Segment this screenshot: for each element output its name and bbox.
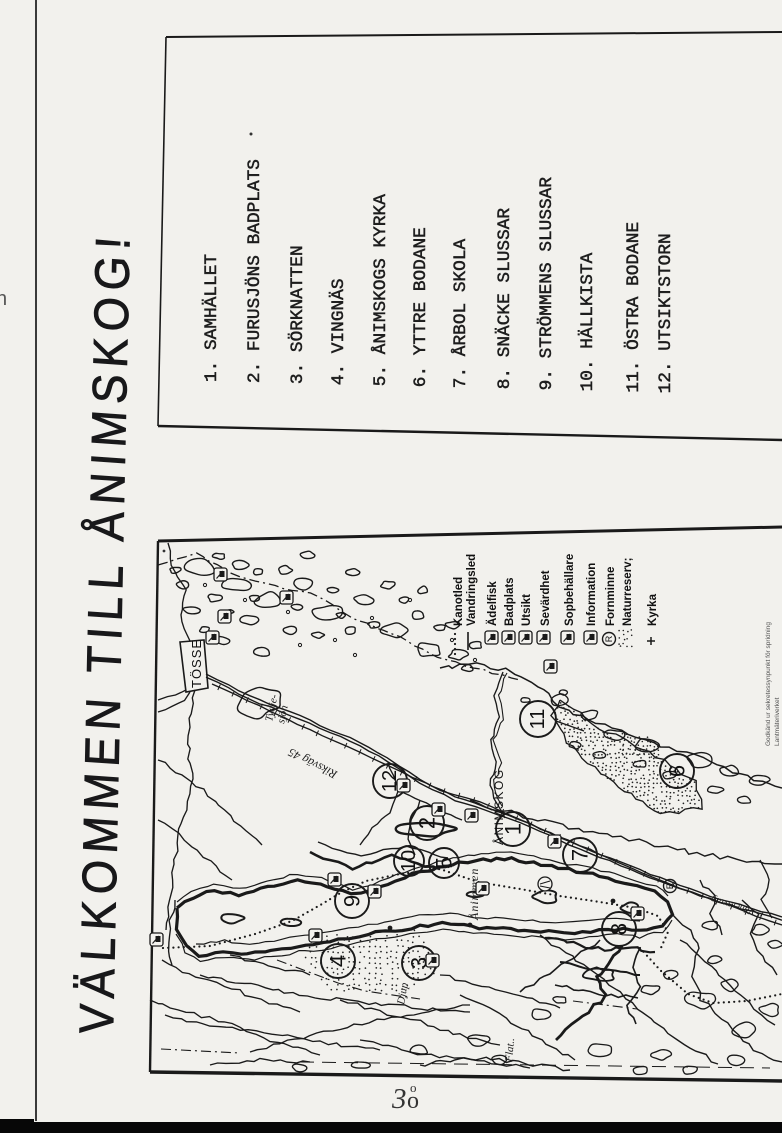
svg-text:3: 3 bbox=[391, 1083, 407, 1115]
svg-text:ÅNIMSKOG: ÅNIMSKOG bbox=[491, 768, 506, 845]
svg-text:11. ÖSTRA BODANE: 11. ÖSTRA BODANE bbox=[623, 222, 644, 393]
svg-text:5. ÅNIMSKOGS KYRKA: 5. ÅNIMSKOGS KYRKA bbox=[370, 194, 391, 386]
svg-text:Riksväg 45: Riksväg 45 bbox=[286, 745, 340, 782]
svg-text:7: 7 bbox=[568, 849, 593, 861]
svg-text:7. ÅRBOL SKOLA: 7. ÅRBOL SKOLA bbox=[450, 238, 471, 388]
svg-text:Sopbehällare: Sopbehällare bbox=[564, 554, 576, 626]
svg-text:8: 8 bbox=[607, 923, 632, 935]
svg-text:5: 5 bbox=[432, 857, 457, 869]
svg-text:8. SNÄCKE SLUSSAR: 8. SNÄCKE SLUSSAR bbox=[494, 208, 515, 390]
svg-text:Godkänd ur sekretessynpunkt fö: Godkänd ur sekretessynpunkt för spridnin… bbox=[765, 622, 772, 746]
svg-text:Sevärdhet: Sevärdhet bbox=[540, 570, 552, 626]
svg-text:Vandringsled: Vandringsled bbox=[466, 554, 478, 626]
svg-text:Fornminne: Fornminne bbox=[605, 567, 617, 626]
svg-text:Utsikt: Utsikt bbox=[521, 594, 533, 626]
svg-text:9: 9 bbox=[340, 895, 365, 907]
svg-text:TÖSSE: TÖSSE bbox=[189, 639, 204, 688]
svg-text:R: R bbox=[665, 882, 675, 889]
svg-text:9. STRÖMMENS SLUSSAR: 9. STRÖMMENS SLUSSAR bbox=[536, 177, 557, 391]
svg-text:4. VINGNÄS: 4. VINGNÄS bbox=[328, 278, 349, 385]
svg-text:Information: Information bbox=[586, 563, 598, 626]
svg-text:Kyrka: Kyrka bbox=[647, 593, 659, 626]
svg-text:o: o bbox=[410, 1080, 417, 1095]
svg-text:Naturreserv;: Naturreserv; bbox=[622, 558, 634, 626]
svg-text:6: 6 bbox=[665, 765, 690, 777]
svg-text:6. YTTRE BODANE: 6. YTTRE BODANE bbox=[411, 227, 431, 387]
svg-text:Kanotled: Kanotled bbox=[453, 577, 465, 626]
svg-text:10: 10 bbox=[398, 850, 420, 872]
svg-text:12. UTSIKTSTORN: 12. UTSIKTSTORN bbox=[656, 233, 676, 393]
svg-text:Flat..: Flat.. bbox=[503, 1037, 517, 1063]
svg-text:3. SÖRKNATTEN: 3. SÖRKNATTEN bbox=[287, 245, 308, 384]
svg-text:R: R bbox=[604, 635, 614, 642]
svg-text:Lantmäteriverket: Lantmäteriverket bbox=[774, 697, 781, 746]
svg-text:Djup: Djup bbox=[395, 981, 411, 1006]
svg-text:11: 11 bbox=[527, 709, 549, 730]
svg-text:4: 4 bbox=[326, 955, 351, 967]
svg-text:2: 2 bbox=[415, 817, 440, 829]
svg-text:Badplats: Badplats bbox=[504, 577, 516, 626]
svg-text:Ädelfisk: Ädelfisk bbox=[486, 581, 499, 626]
svg-text:1. SAMHÄLLET: 1. SAMHÄLLET bbox=[201, 254, 222, 382]
svg-text:t -Vänersvulg: t -Vänersvulg bbox=[710, 893, 765, 919]
svg-text:10. HÄLLKISTA: 10. HÄLLKISTA bbox=[577, 252, 598, 391]
svg-text:2. FURUSJÖNS BADPLATS: 2. FURUSJÖNS BADPLATS bbox=[244, 159, 265, 383]
